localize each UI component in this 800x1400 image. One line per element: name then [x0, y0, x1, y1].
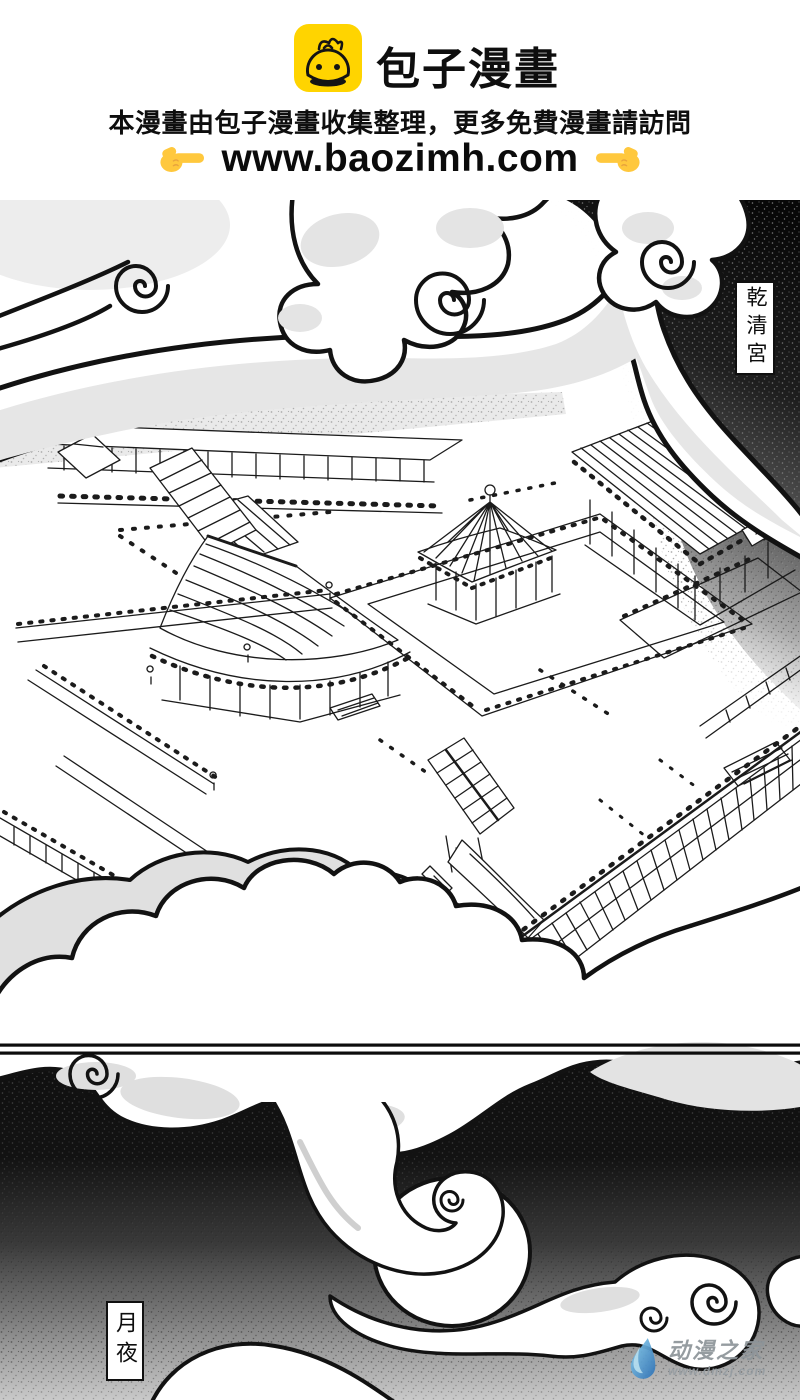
site-url-link[interactable]: www.baozimh.com: [221, 137, 578, 181]
dmzj-watermark: 动漫之家 www.dmzj.com: [627, 1336, 766, 1380]
baozi-logo-icon: [294, 24, 362, 92]
site-title: 包子漫畫: [376, 33, 560, 97]
panel2-caption: 月夜: [109, 1311, 141, 1371]
manga-page: { "header": { "site_title": "包子漫畫", "not…: [0, 0, 800, 1400]
watermark-site-name: 动漫之家: [668, 1340, 766, 1362]
url-row: www.baozimh.com: [0, 136, 800, 182]
panel1-caption-box: 乾清宮: [735, 281, 775, 375]
comic-artwork: [0, 200, 800, 1400]
pointing-hand-left-icon: [595, 144, 641, 174]
pointing-hand-right-icon: [159, 144, 205, 174]
notice-text: 本漫畫由包子漫畫收集整理，更多免費漫畫請訪問: [0, 103, 800, 140]
panel2-caption-box: 月夜: [106, 1301, 144, 1381]
water-drop-icon: [627, 1336, 661, 1380]
site-header: 包子漫畫 本漫畫由包子漫畫收集整理，更多免費漫畫請訪問 www.baozimh.…: [0, 0, 800, 200]
panel1-caption: 乾清宮: [740, 286, 770, 370]
watermark-site-url: www.dmzj.com: [668, 1365, 766, 1377]
